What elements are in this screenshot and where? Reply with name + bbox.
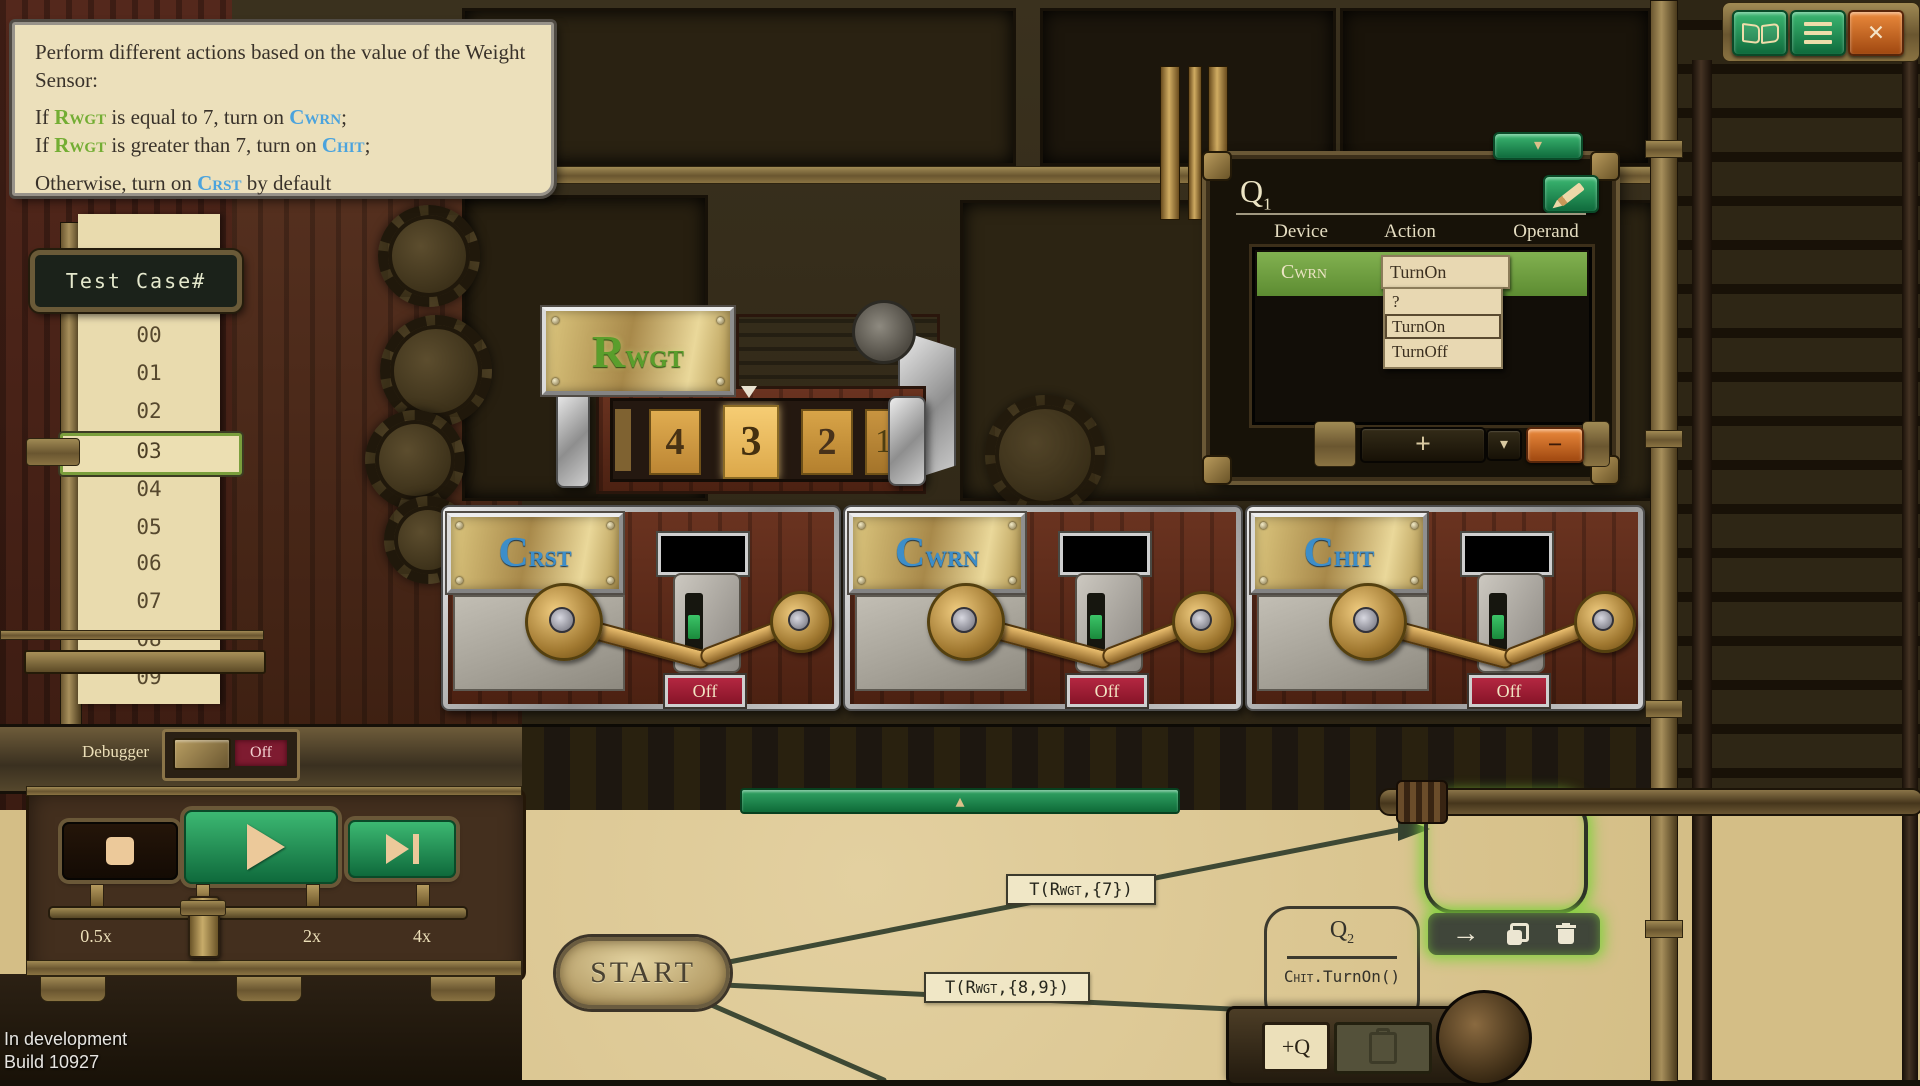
test-case-row[interactable]: 04: [78, 470, 220, 508]
row-chevron-button[interactable]: ▾: [1486, 429, 1522, 461]
device-module-cwrn: CWRN Off: [843, 505, 1243, 711]
indicator-green: [1492, 615, 1504, 639]
test-case-header: Test Case#: [66, 269, 206, 293]
menu-button[interactable]: [1790, 10, 1846, 56]
instruction-intro: Perform different actions based on the v…: [35, 39, 531, 94]
gear-icon: [378, 205, 480, 307]
reel-card-edge: [615, 409, 631, 471]
play-button[interactable]: [184, 810, 338, 884]
add-q-label: +Q: [1282, 1034, 1310, 1060]
edge-label-text: T(: [945, 978, 965, 998]
q2-divider: [1287, 956, 1397, 959]
crank-hub: [1592, 609, 1614, 631]
q1-title: Q1: [1240, 173, 1272, 214]
clipboard-button[interactable]: [1334, 1022, 1432, 1074]
column-header-operand: Operand: [1498, 221, 1594, 243]
indicator-green: [688, 615, 700, 639]
reel-end-bracket: [888, 396, 926, 486]
edge-condition-label[interactable]: T(Rwgt,{8,9}): [924, 972, 1090, 1003]
reel-pointer: [741, 386, 757, 398]
test-case-plaque: Test Case#: [30, 250, 242, 312]
device-module-crst: CRST Off: [441, 505, 841, 711]
add-q-button[interactable]: +Q: [1262, 1022, 1330, 1072]
console-foot: [236, 976, 302, 1002]
pipe-coupling: [1396, 780, 1448, 824]
instruction-line: Otherwise, turn on Crst by default: [35, 170, 531, 198]
edit-button[interactable]: [1543, 175, 1599, 213]
machine-drum: [1436, 990, 1532, 1086]
device-plate: CRST: [447, 513, 623, 593]
test-case-row[interactable]: 06: [78, 544, 220, 582]
edge-label-text: T(: [1029, 880, 1049, 900]
indicator-green: [1090, 615, 1102, 639]
debugger-toggle[interactable]: Off: [162, 729, 300, 781]
close-button[interactable]: ×: [1848, 10, 1904, 56]
test-case-row[interactable]: 01: [78, 354, 220, 392]
edge-label-text: ,{8,9}): [997, 978, 1069, 998]
device-display-window: [1060, 533, 1150, 575]
console-rail: [26, 786, 522, 796]
speed-label-05x: 0.5x: [66, 926, 126, 947]
device-status-badge: Off: [665, 675, 745, 707]
device-plate: CWRN: [849, 513, 1025, 593]
step-forward-icon: [386, 834, 419, 864]
column-header-device: Device: [1256, 221, 1346, 243]
gear-icon: [365, 410, 465, 510]
panel-footer-mount: [1314, 421, 1356, 467]
copy-icon[interactable]: [1507, 923, 1529, 945]
q2-title: Q2: [1267, 917, 1417, 948]
test-case-row[interactable]: 05: [78, 508, 220, 546]
edge-label-sensor: Rwgt: [965, 978, 997, 998]
slider-tick: [90, 884, 104, 908]
action-dropdown: ? TurnOn TurnOff: [1383, 287, 1503, 369]
node-toolbar: →: [1428, 913, 1600, 955]
pipe-joint: [1645, 700, 1683, 718]
toggle-state-window: Off: [235, 740, 287, 766]
horizontal-pipe: [1378, 788, 1920, 816]
title-divider: [1236, 213, 1586, 215]
reel-card: 4: [649, 409, 701, 475]
test-case-row[interactable]: 07: [78, 582, 220, 620]
start-node-label: START: [590, 956, 696, 990]
row-device-label: Cwrn: [1281, 261, 1327, 284]
column-header-action: Action: [1368, 221, 1452, 243]
device-status-badge: Off: [1067, 675, 1147, 707]
instruction-line: If Rwgt is equal to 7, turn on Cwrn;: [35, 104, 531, 132]
q1-action-panel: Q1 Device Action Operand Cwrn TurnOn ? T…: [1206, 155, 1616, 481]
build-line1: In development: [4, 1028, 127, 1051]
dropdown-option[interactable]: TurnOff: [1385, 339, 1501, 364]
instruction-panel: Perform different actions based on the v…: [12, 22, 554, 196]
sensor-reel: 4 3 2 1: [610, 398, 906, 482]
close-icon: ×: [1867, 18, 1884, 48]
crank-hub: [549, 607, 575, 633]
sensor-token: Rwgt: [54, 105, 106, 129]
start-node[interactable]: START: [556, 937, 730, 1009]
toggle-knob: [173, 738, 231, 770]
manual-button[interactable]: [1732, 10, 1788, 56]
stop-icon: [106, 837, 134, 865]
device-token: Chit: [322, 133, 365, 157]
pipe-joint: [1645, 430, 1683, 448]
machine-wheel: [852, 300, 916, 364]
paper-tray: [24, 650, 266, 674]
clipboard-icon: [1369, 1032, 1397, 1064]
slider-tick: [416, 884, 430, 908]
dark-pipe: [1692, 60, 1712, 1080]
device-module-chit: CHIT Off: [1245, 505, 1645, 711]
build-info: In development Build 10927: [4, 1028, 127, 1073]
move-arrow-icon[interactable]: →: [1452, 920, 1480, 948]
edge-condition-label[interactable]: T(Rwgt,{7}): [1006, 874, 1156, 905]
q2-action-text: Chit.TurnOn(): [1267, 967, 1417, 986]
device-name: CWRN: [895, 529, 979, 577]
instruction-line: If Rwgt is greater than 7, turn on Chit;: [35, 132, 531, 160]
menu-icon: [1804, 22, 1832, 44]
game-screen: { "header_bar": {"close_glyph": "×"}, "i…: [0, 0, 1920, 1080]
test-case-row-label: 03: [78, 433, 220, 469]
remove-row-button[interactable]: −: [1526, 427, 1584, 463]
dropdown-option-highlighted[interactable]: TurnOn: [1385, 314, 1501, 339]
device-name: CHIT: [1304, 529, 1375, 577]
panel-corner: [1202, 455, 1232, 485]
sensor-name: RWGT: [592, 325, 684, 378]
crank-hub: [788, 609, 810, 631]
gear-icon: [380, 315, 492, 427]
device-token: Cwrn: [289, 105, 341, 129]
device-plate: CHIT: [1251, 513, 1427, 593]
q1-table: Cwrn TurnOn ? TurnOn TurnOff: [1252, 247, 1592, 425]
device-status-badge: Off: [1469, 675, 1549, 707]
gear-icon: [985, 395, 1105, 515]
reel-card-current: 3: [723, 405, 779, 479]
brass-rod: [1160, 66, 1180, 220]
selection-clamp: [26, 438, 80, 466]
panel-corner: [1202, 151, 1232, 181]
panel-footer-mount: [1582, 421, 1610, 467]
device-display-window: [1462, 533, 1552, 575]
crank-hub: [1190, 609, 1212, 631]
slider-tick: [306, 884, 320, 908]
brass-rod: [1188, 66, 1202, 220]
drawer-expand-bar[interactable]: ▴: [740, 788, 1180, 814]
edge-label-text: ,{7}): [1082, 880, 1133, 900]
test-case-row[interactable]: 02: [78, 392, 220, 430]
stop-button[interactable]: [62, 822, 178, 880]
speed-slider-rail[interactable]: [48, 906, 468, 920]
panel-collapse-tab[interactable]: ▾: [1493, 132, 1583, 160]
slider-handle-cap: [180, 900, 226, 916]
step-button[interactable]: [348, 820, 456, 878]
dropdown-option[interactable]: ?: [1385, 289, 1501, 314]
pipe-joint: [1645, 920, 1683, 938]
pencil-icon: [1557, 182, 1585, 206]
trash-icon[interactable]: [1556, 923, 1576, 945]
edge-label-sensor: Rwgt: [1050, 880, 1082, 900]
weight-sensor-plate: RWGT: [542, 307, 734, 395]
add-row-button[interactable]: +: [1360, 427, 1486, 463]
debugger-label: Debugger: [82, 742, 149, 762]
sensor-token: Rwgt: [54, 133, 106, 157]
crank-hub: [1353, 607, 1379, 633]
device-name: CRST: [498, 529, 571, 577]
console-foot: [40, 976, 106, 1002]
console-bottom-rail: [26, 960, 522, 976]
build-line2: Build 10927: [4, 1051, 127, 1074]
reel-card: 2: [801, 409, 853, 475]
action-select[interactable]: TurnOn: [1381, 255, 1510, 289]
speed-label-4x: 4x: [398, 926, 446, 947]
console-foot: [430, 976, 496, 1002]
debugger-state: Off: [250, 744, 272, 762]
speed-label-2x: 2x: [288, 926, 336, 947]
device-display-window: [658, 533, 748, 575]
device-token: Crst: [197, 171, 241, 195]
crank-hub: [951, 607, 977, 633]
test-case-row[interactable]: 00: [78, 316, 220, 354]
dark-pipe: [1902, 60, 1918, 1080]
paper-rail: [0, 630, 264, 640]
pipe-joint: [1645, 140, 1683, 158]
book-icon: [1742, 24, 1779, 43]
play-icon: [247, 824, 285, 870]
weight-sensor-bracket: [556, 390, 590, 488]
